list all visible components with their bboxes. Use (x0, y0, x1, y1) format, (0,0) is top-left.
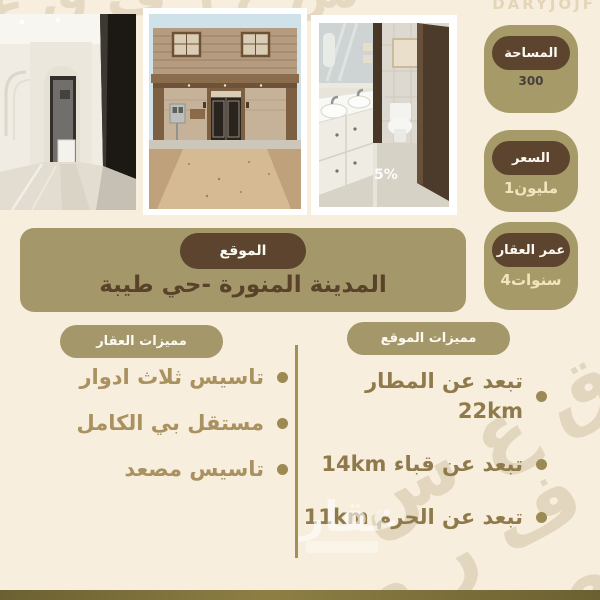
real-estate-flyer: س ح ر ف ق ع ق ع س ح ف ر م ن ص ب DARYJOJF (0, 0, 600, 600)
price-value: مليون1 (504, 179, 558, 197)
property-feature-item: تاسيس ثلاث ادوار (10, 362, 288, 392)
brand-watermark: DARYJOJF (492, 0, 596, 13)
property-features-list: تاسيس ثلاث ادوار مستقل بي الكامل تاسيس م… (10, 362, 288, 484)
bottom-bar (0, 590, 600, 600)
bullet-icon (277, 418, 288, 429)
photo-bathroom (311, 15, 457, 215)
bullet-icon (536, 391, 547, 402)
property-age-badge: عمر العقار سنوات4 (484, 222, 578, 310)
feature-text: تبعد عن قباء 14km (321, 449, 523, 479)
bullet-icon (277, 464, 288, 475)
column-divider (295, 345, 298, 558)
property-age-label-pill: عمر العقار (492, 233, 570, 267)
feature-text: تبعد عن المطار 22km (303, 366, 523, 426)
bullet-icon (536, 459, 547, 470)
location-feature-item: تبعد عن المطار 22km (303, 366, 547, 426)
area-value: 300 (518, 74, 543, 88)
location-value: المدينة المنورة -حي طيبة (99, 272, 387, 298)
property-features-title-pill: مميزات العقار (60, 325, 223, 358)
photo-discount-badge: 5% (374, 167, 398, 183)
photo-hallway-interior (0, 14, 136, 210)
area-label-pill: المساحة (492, 36, 570, 70)
location-features-title-pill: مميزات الموقع (347, 322, 510, 355)
location-feature-item: تبعد عن قباء 14km (303, 449, 547, 479)
area-badge: المساحة 300 (484, 25, 578, 113)
bullet-icon (536, 512, 547, 523)
feature-text: تاسيس ثلاث ادوار (79, 362, 264, 392)
property-feature-item: مستقل بي الكامل (10, 408, 288, 438)
location-banner: الموقع المدينة المنورة -حي طيبة (20, 228, 466, 312)
feature-text: مستقل بي الكامل (77, 408, 264, 438)
location-label-pill: الموقع (180, 233, 306, 269)
feature-text: تاسيس مصعد (124, 454, 264, 484)
bullet-icon (277, 372, 288, 383)
property-feature-item: تاسيس مصعد (10, 454, 288, 484)
property-age-value: سنوات4 (501, 271, 562, 289)
price-label-pill: السعر (492, 141, 570, 175)
photo-building-exterior (143, 8, 307, 215)
agency-watermark: عقار (300, 492, 399, 541)
price-badge: السعر مليون1 (484, 130, 578, 212)
agency-watermark-underline (306, 541, 378, 553)
